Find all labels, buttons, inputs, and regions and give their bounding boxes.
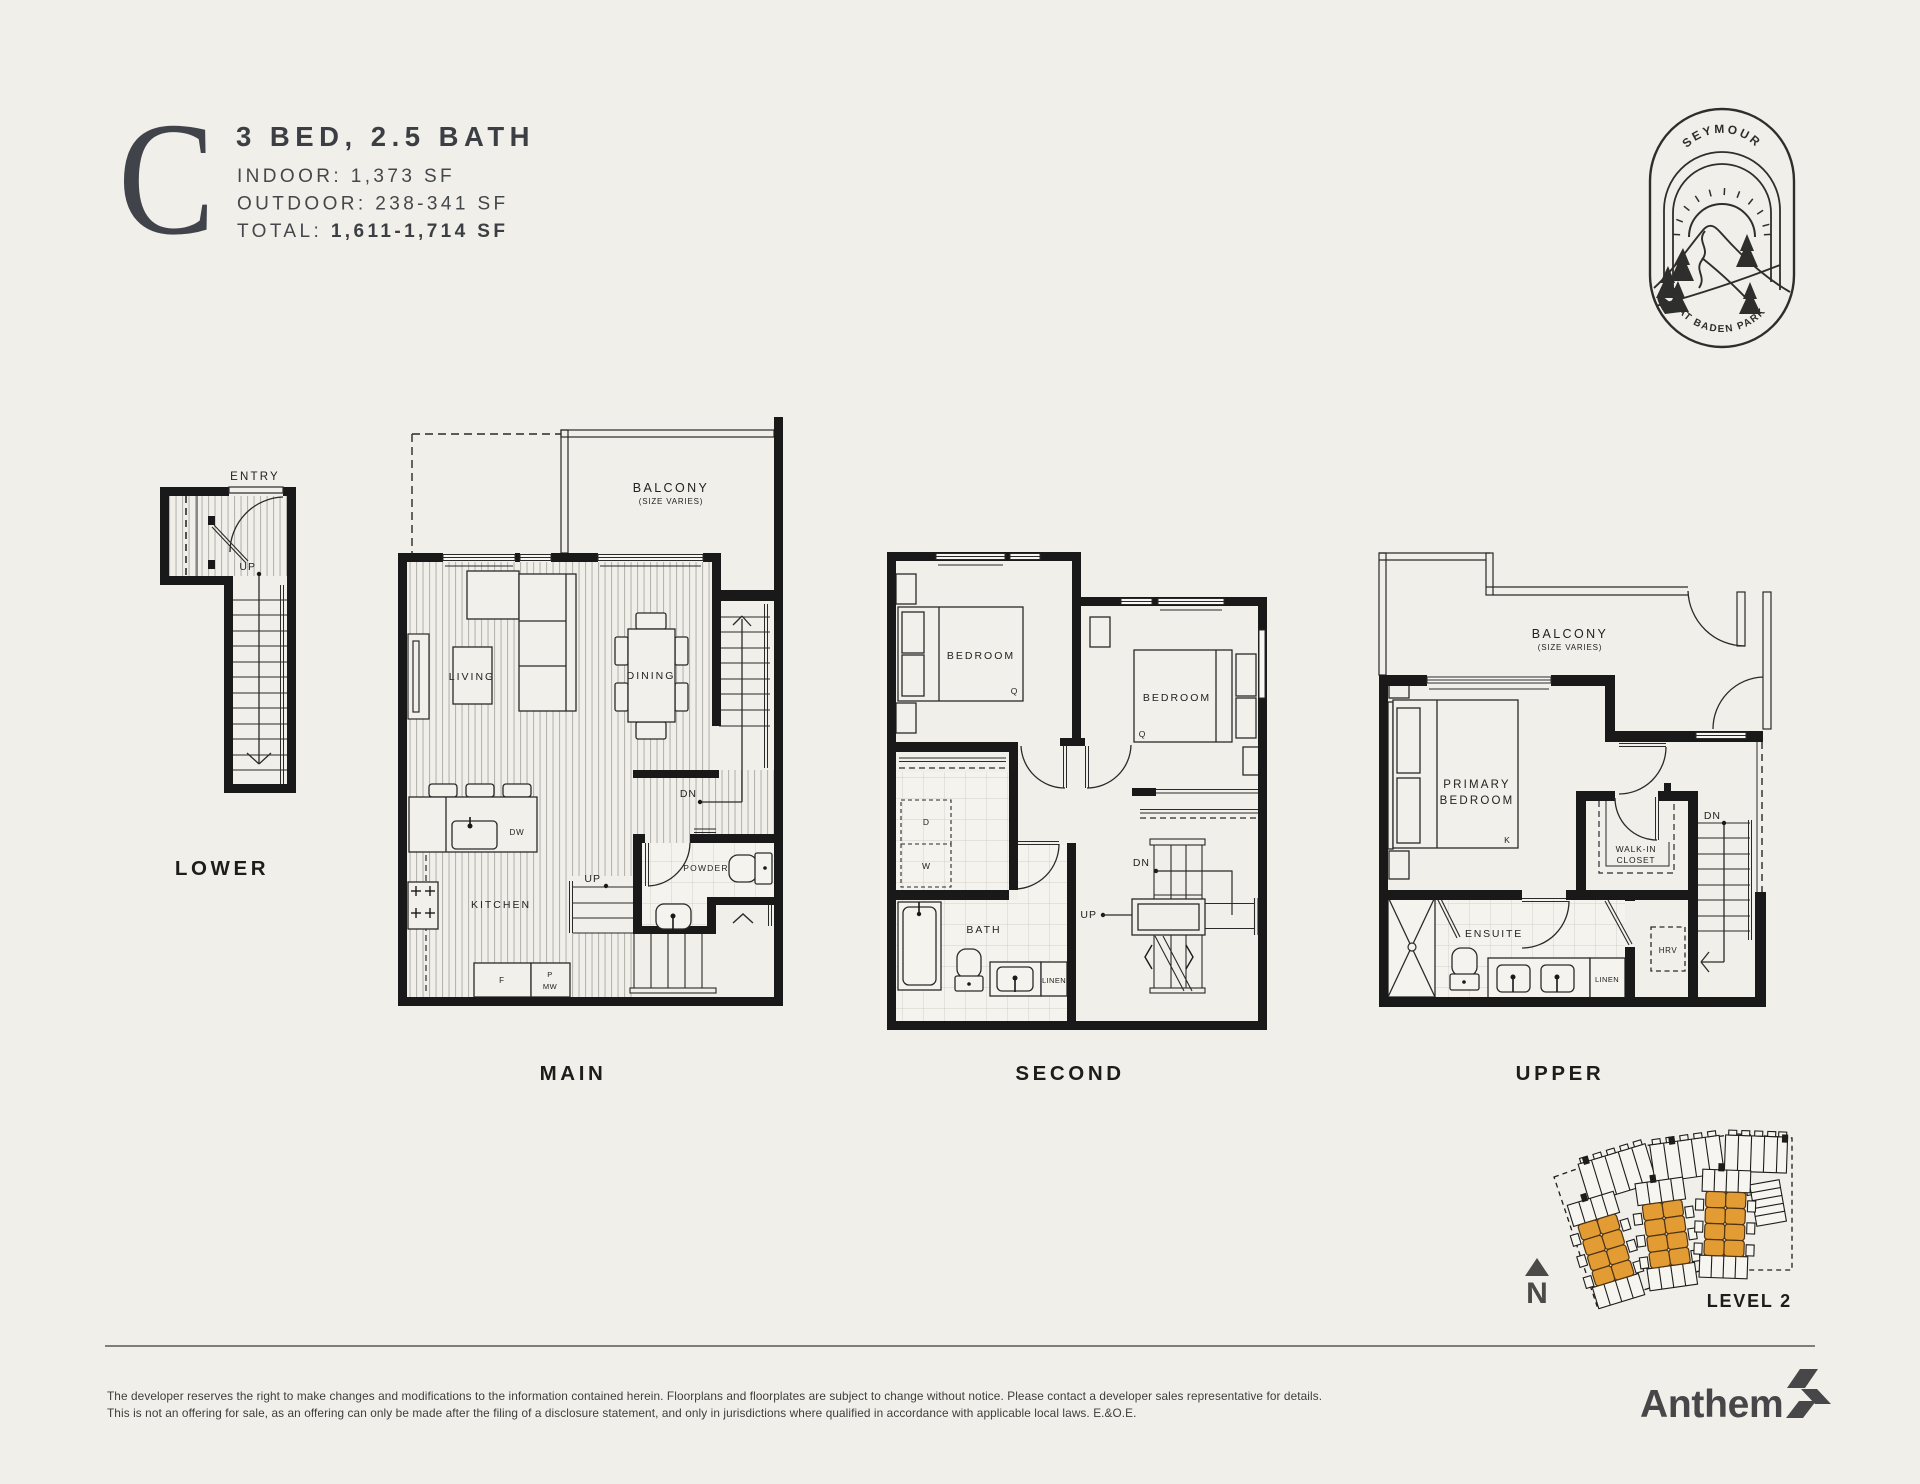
svg-text:BALCONY: BALCONY bbox=[633, 481, 710, 495]
svg-text:DN: DN bbox=[680, 788, 697, 800]
svg-text:BEDROOM: BEDROOM bbox=[1440, 795, 1515, 807]
svg-text:UP: UP bbox=[239, 561, 256, 573]
svg-text:SECOND: SECOND bbox=[1015, 1062, 1124, 1085]
svg-text:MAIN: MAIN bbox=[540, 1062, 607, 1085]
svg-text:WALK-IN: WALK-IN bbox=[1616, 844, 1657, 854]
svg-text:BEDROOM: BEDROOM bbox=[947, 650, 1015, 662]
svg-text:LINEN: LINEN bbox=[1042, 976, 1066, 985]
svg-text:CLOSET: CLOSET bbox=[1617, 855, 1656, 865]
svg-text:TOTAL: 1,611-1,714 SF: TOTAL: 1,611-1,714 SF bbox=[237, 221, 508, 242]
svg-text:Anthem: Anthem bbox=[1640, 1383, 1783, 1426]
svg-text:This is not an offering for sa: This is not an offering for sale, as an … bbox=[107, 1406, 1137, 1420]
svg-text:Q: Q bbox=[1011, 686, 1018, 696]
svg-text:UPPER: UPPER bbox=[1516, 1062, 1605, 1085]
svg-text:Q: Q bbox=[1139, 729, 1146, 739]
svg-text:UP: UP bbox=[1080, 909, 1097, 921]
svg-text:POWDER: POWDER bbox=[683, 863, 728, 873]
svg-text:LINEN: LINEN bbox=[1595, 975, 1619, 984]
svg-text:UP: UP bbox=[584, 873, 601, 885]
svg-text:K: K bbox=[1504, 835, 1510, 845]
svg-text:ENTRY: ENTRY bbox=[230, 471, 280, 483]
svg-text:D: D bbox=[923, 817, 929, 827]
svg-text:The developer reserves the rig: The developer reserves the right to make… bbox=[107, 1389, 1322, 1403]
svg-text:P: P bbox=[547, 970, 552, 979]
svg-text:BATH: BATH bbox=[966, 924, 1001, 936]
svg-text:LIVING: LIVING bbox=[449, 671, 495, 683]
svg-text:PRIMARY: PRIMARY bbox=[1443, 779, 1511, 791]
svg-text:LOWER: LOWER bbox=[175, 857, 269, 880]
svg-text:3 BED, 2.5 BATH: 3 BED, 2.5 BATH bbox=[236, 121, 535, 152]
svg-text:SEYMOUR: SEYMOUR bbox=[1679, 122, 1764, 151]
svg-text:MW: MW bbox=[543, 982, 558, 991]
svg-text:DN: DN bbox=[1704, 810, 1721, 822]
svg-text:ENSUITE: ENSUITE bbox=[1465, 928, 1523, 940]
svg-text:W: W bbox=[922, 861, 930, 871]
svg-text:(SIZE VARIES): (SIZE VARIES) bbox=[639, 497, 703, 506]
svg-text:F: F bbox=[499, 976, 505, 985]
svg-text:LEVEL 2: LEVEL 2 bbox=[1707, 1291, 1792, 1311]
svg-text:BALCONY: BALCONY bbox=[1532, 627, 1609, 641]
svg-text:HRV: HRV bbox=[1659, 946, 1678, 955]
svg-text:KITCHEN: KITCHEN bbox=[471, 899, 531, 911]
svg-text:OUTDOOR: 238-341 SF: OUTDOOR: 238-341 SF bbox=[237, 194, 509, 215]
svg-text:C: C bbox=[118, 90, 215, 269]
svg-text:DINING: DINING bbox=[627, 670, 676, 682]
svg-text:DN: DN bbox=[1133, 857, 1150, 869]
svg-text:INDOOR: 1,373 SF: INDOOR: 1,373 SF bbox=[237, 166, 455, 187]
svg-text:(SIZE VARIES): (SIZE VARIES) bbox=[1538, 643, 1602, 652]
svg-text:BEDROOM: BEDROOM bbox=[1143, 692, 1211, 704]
svg-text:DW: DW bbox=[510, 828, 525, 837]
svg-text:N: N bbox=[1526, 1277, 1548, 1310]
